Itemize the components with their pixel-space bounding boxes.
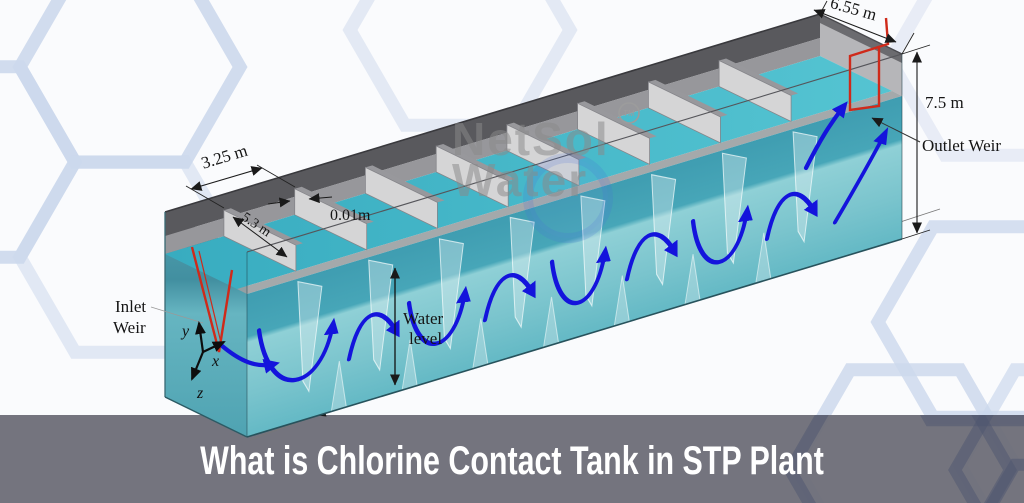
inlet-weir-label-line1: Inlet <box>115 297 146 316</box>
inlet-weir-label-line2: Weir <box>113 318 146 337</box>
trademark-text: TM <box>623 109 635 118</box>
banner-title: What is Chlorine Contact Tank in STP Pla… <box>200 438 824 483</box>
z-axis-label: z <box>196 385 204 402</box>
chlorine-contact-tank-infographic: What is Chlorine Contact Tank in STP Pla… <box>0 0 1024 503</box>
dimension-label-tank-depth: 7.5 m <box>925 93 964 112</box>
diagram-canvas: What is Chlorine Contact Tank in STP Pla… <box>0 0 1024 503</box>
water-level-label-line1: Water <box>403 309 443 328</box>
water-level-label-line2: level <box>409 329 442 348</box>
dimension-label-baffle-thickness: 0.01m <box>330 207 371 224</box>
outlet-weir-label: Outlet Weir <box>922 136 1001 155</box>
x-axis-label: x <box>211 353 219 370</box>
y-axis-label: y <box>180 323 190 340</box>
watermark-line2: Water <box>452 154 588 206</box>
